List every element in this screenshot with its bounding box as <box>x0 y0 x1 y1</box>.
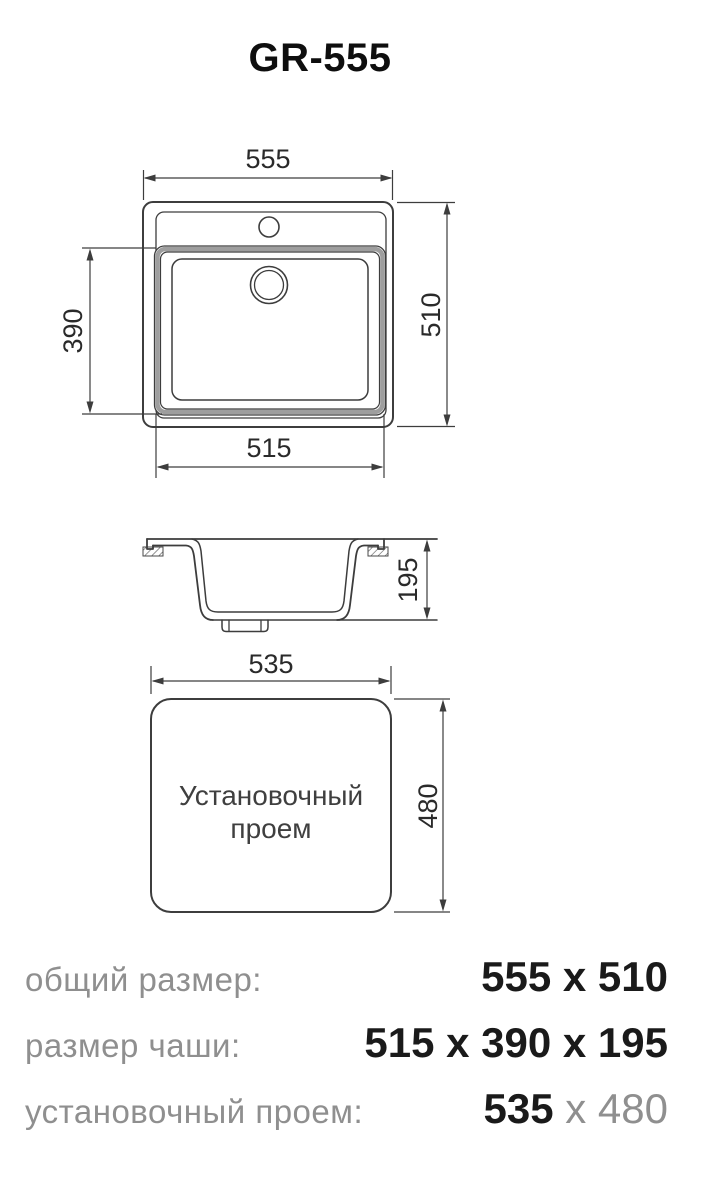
dim-overall-height-label: 510 <box>416 292 446 337</box>
cutout-caption-line2: проем <box>230 813 311 844</box>
summary-value-cutout-gray: x 480 <box>554 1085 668 1132</box>
summary-value-bowl-black: 515 x 390 x 195 <box>364 1019 668 1066</box>
summary-row-cutout: установочный проем: 535 x 480 <box>25 1076 668 1142</box>
section-view-drawing: 195 <box>0 520 500 660</box>
dim-overall-width-label: 555 <box>245 144 290 174</box>
dim-cutout-width-label: 535 <box>248 649 293 679</box>
model-title: GR-555 <box>0 36 640 81</box>
summary-label-overall: общий размер: <box>25 947 262 1013</box>
summary-value-cutout-black: 535 <box>484 1085 554 1132</box>
cutout-caption-line1: Установочный <box>179 780 363 811</box>
summary-value-bowl: 515 x 390 x 195 <box>364 1010 668 1086</box>
summary-value-cutout: 535 x 480 <box>484 1076 669 1152</box>
summary-label-bowl: размер чаши: <box>25 1013 241 1079</box>
dim-overall-width <box>144 170 393 200</box>
top-view-drawing: 555 510 390 515 <box>0 140 500 500</box>
dim-bowl-length-label: 390 <box>58 308 88 353</box>
dim-cutout-height-label: 480 <box>413 783 443 828</box>
dim-bowl-depth-label: 195 <box>393 557 423 602</box>
dimensions-summary: общий размер: 555 x 510 размер чаши: 515… <box>25 944 668 1142</box>
drain-hole-outer <box>251 267 288 304</box>
summary-value-overall-black: 555 x 510 <box>481 953 668 1000</box>
dim-bowl-width-label: 515 <box>246 433 291 463</box>
sink-spec-sheet: GR-555 555 510 <box>0 0 719 1200</box>
summary-label-cutout: установочный проем: <box>25 1079 363 1145</box>
cutout-view-drawing: Установочный проем 535 480 <box>0 648 500 938</box>
summary-value-overall: 555 x 510 <box>481 944 668 1020</box>
summary-row-overall: общий размер: 555 x 510 <box>25 944 668 1010</box>
dim-bowl-depth <box>424 540 431 620</box>
faucet-hole <box>259 217 279 237</box>
summary-row-bowl: размер чаши: 515 x 390 x 195 <box>25 1010 668 1076</box>
